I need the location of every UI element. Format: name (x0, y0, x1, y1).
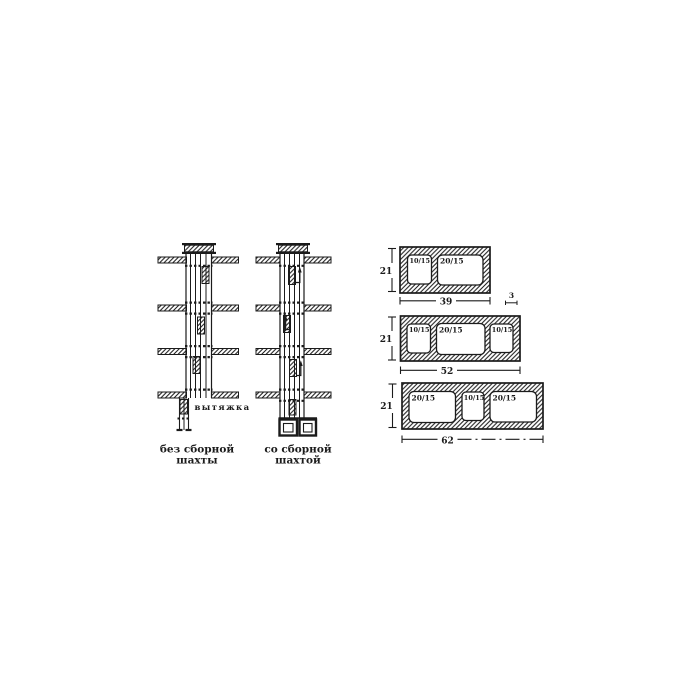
opening-size-label: 20/15 (439, 326, 463, 335)
block-section-52: 10/15 20/15 10/15 21 52 (380, 316, 520, 377)
collector-outlet-blocks (279, 418, 318, 436)
roof-cap (182, 243, 216, 254)
roof-cap (276, 243, 310, 254)
wall-thickness-dimension (506, 301, 518, 305)
joint-ticks (279, 266, 305, 401)
exhaust-label: вытяжка (195, 403, 251, 413)
ventilation-shaft-figure: вытяжка без сборной шахты (0, 0, 700, 700)
block-section-62: 20/15 10/15 20/15 21 62 (380, 383, 543, 447)
height-dimension-label: 21 (380, 402, 393, 412)
technical-figure-canvas: вытяжка без сборной шахты (0, 0, 700, 700)
height-dimension-label: 21 (380, 267, 393, 277)
opening-size-label: 10/15 (492, 326, 513, 334)
opening-size-label: 10/15 (410, 257, 431, 265)
width-dimension-label: 62 (441, 437, 454, 447)
opening-size-label: 20/15 (493, 394, 517, 403)
caption-with-collector-line2: шахтой (275, 455, 321, 467)
wall-thickness-label: 3 (509, 291, 514, 300)
caption-without-collector-line2: шахты (176, 455, 218, 467)
opening-size-label: 20/15 (440, 257, 464, 266)
width-dimension (401, 367, 521, 375)
width-dimension (402, 436, 543, 444)
exhaust-duct (177, 398, 192, 430)
width-dimension-label: 39 (440, 298, 453, 308)
opening-size-label: 20/15 (412, 394, 436, 403)
block-section-39: 10/15 20/15 21 39 3 (380, 247, 517, 308)
width-dimension-label: 52 (441, 367, 454, 377)
opening-size-label: 10/15 (409, 326, 430, 334)
height-dimension-label: 21 (380, 335, 393, 345)
shaft-with-collector-diagram: со сборной шахтой (256, 243, 332, 467)
opening-size-label: 10/15 (464, 394, 485, 402)
shaft-without-collector-diagram: вытяжка без сборной шахты (158, 243, 251, 467)
